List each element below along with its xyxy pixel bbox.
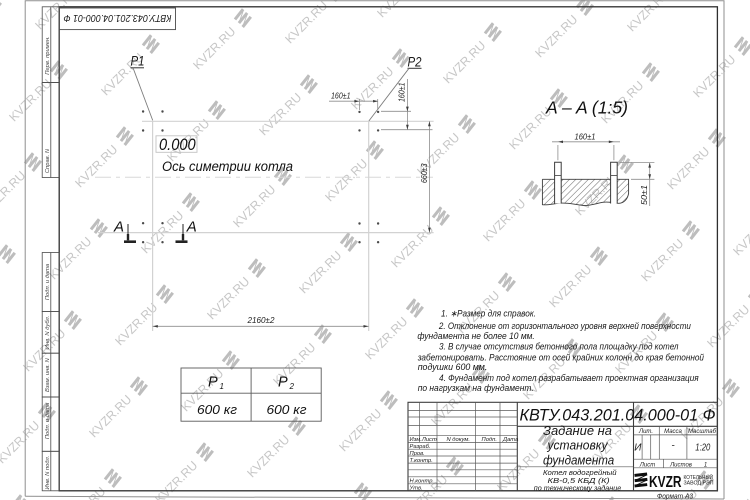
svg-text:660±3: 660±3	[420, 163, 429, 183]
svg-text:600 кг: 600 кг	[197, 402, 238, 417]
svg-text:P: P	[278, 375, 288, 391]
svg-text:KVZR: KVZR	[649, 474, 682, 491]
svg-text:Н.контр.: Н.контр.	[410, 479, 435, 485]
svg-text:Инв. N дубл.: Инв. N дубл.	[45, 316, 51, 350]
svg-text:Подп.: Подп.	[482, 437, 497, 443]
svg-text:1: 1	[704, 463, 707, 469]
svg-text:Формат А3: Формат А3	[657, 491, 694, 500]
svg-text:3. В случае отсутствия бетонно: 3. В случае отсутствия бетонного пола пл…	[439, 342, 679, 352]
svg-text:Т.контр.: Т.контр.	[410, 458, 433, 464]
svg-text:Подп. и дата: Подп. и дата	[45, 402, 51, 439]
svg-text:Масса: Масса	[664, 429, 682, 435]
svg-text:Взам. инв. N: Взам. инв. N	[45, 357, 51, 392]
svg-text:КВТУ.043.201.04.000-01 Ф: КВТУ.043.201.04.000-01 Ф	[63, 12, 171, 23]
svg-text:Лист: Лист	[639, 463, 655, 469]
svg-text:ЗАВОД РЭП: ЗАВОД РЭП	[684, 481, 714, 487]
svg-text:A: A	[113, 219, 124, 236]
svg-text:фундамента не более 10 мм.: фундамента не более 10 мм.	[417, 331, 534, 341]
svg-text:Масштаб: Масштаб	[688, 429, 717, 435]
svg-text:P: P	[208, 375, 218, 391]
svg-text:160±1: 160±1	[575, 132, 596, 141]
svg-text:установку: установку	[547, 439, 609, 453]
svg-text:160±1: 160±1	[398, 83, 407, 103]
svg-text:A – A (1:5): A – A (1:5)	[545, 98, 628, 118]
svg-text:Лит.: Лит.	[638, 429, 653, 435]
svg-text:2. Отклонение от горизонтально: 2. Отклонение от горизонтального уровня …	[438, 321, 691, 331]
svg-text:Подп. и дата: Подп. и дата	[45, 263, 51, 300]
svg-text:Справ. N: Справ. N	[45, 148, 51, 173]
svg-text:Ось симетрии котла: Ось симетрии котла	[162, 159, 293, 174]
svg-text:160±1: 160±1	[331, 92, 351, 101]
svg-text:2: 2	[289, 382, 295, 391]
svg-text:КОТЕЛЬНЫЙ: КОТЕЛЬНЫЙ	[684, 473, 714, 481]
svg-text:A: A	[186, 219, 197, 236]
svg-text:КВ-0,5 КБД (К): КВ-0,5 КБД (К)	[548, 478, 610, 485]
svg-text:Пров.: Пров.	[410, 451, 425, 457]
svg-text:Перв. примен.: Перв. примен.	[45, 36, 51, 75]
svg-text:1:20: 1:20	[695, 441, 710, 453]
svg-text:1: 1	[220, 382, 224, 391]
svg-text:Утв.: Утв.	[409, 486, 423, 492]
svg-text:фундамента: фундамента	[543, 454, 614, 468]
svg-text:4. Фундамент под котел разраба: 4. Фундамент под котел разрабатывает про…	[439, 373, 699, 383]
svg-text:P2: P2	[408, 55, 422, 70]
svg-text:Дата: Дата	[502, 437, 519, 443]
svg-text:1. ∗Размер для справок.: 1. ∗Размер для справок.	[441, 308, 536, 318]
svg-text:И: И	[634, 442, 642, 453]
svg-text:P1: P1	[131, 54, 145, 69]
svg-text:Разраб.: Разраб.	[410, 444, 431, 450]
svg-text:0.000: 0.000	[159, 135, 196, 154]
svg-text:Листов: Листов	[669, 463, 692, 469]
svg-text:по техническому задание: по техническому задание	[534, 484, 622, 492]
svg-text:по нагрузкам на фундамент.: по нагрузкам на фундамент.	[418, 383, 534, 393]
svg-text:Инв. N подл.: Инв. N подл.	[45, 456, 51, 490]
svg-text:Изм.Лист: Изм.Лист	[410, 437, 437, 443]
svg-text:КВТУ.043.201.04.000-01 Ф: КВТУ.043.201.04.000-01 Ф	[520, 406, 716, 425]
svg-text:600 кг: 600 кг	[267, 402, 308, 417]
svg-text:Задание на: Задание на	[543, 424, 612, 438]
svg-text:забетонировать. Расстояние от: забетонировать. Расстояние от осей крайн…	[417, 353, 704, 363]
svg-text:Котел водогрейный: Котел водогрейный	[543, 469, 617, 477]
svg-text:подушки 600 мм.: подушки 600 мм.	[418, 362, 488, 372]
svg-text:2160±2: 2160±2	[247, 315, 275, 325]
svg-text:50±1: 50±1	[640, 185, 649, 205]
svg-text:N докум.: N докум.	[447, 437, 470, 443]
